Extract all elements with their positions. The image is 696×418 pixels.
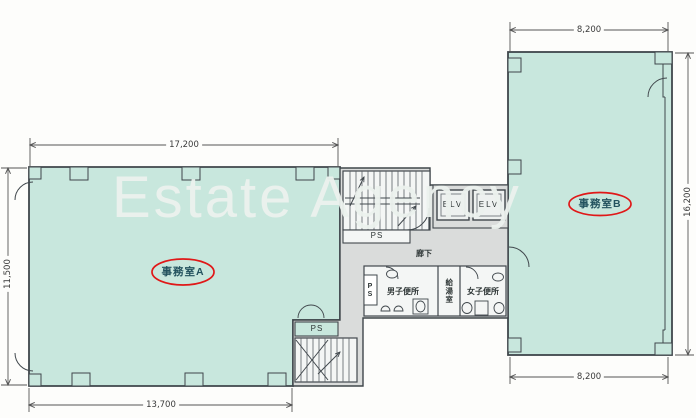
office-b-room [508, 52, 672, 355]
floorplan-drawing [0, 0, 696, 418]
lower-stairwell [295, 338, 357, 382]
office-a-room [15, 167, 340, 386]
elevator-1-box [437, 190, 469, 220]
toilet-block [364, 266, 506, 316]
upper-stairwell [343, 171, 430, 230]
elevator-2-box [473, 190, 505, 220]
elevator-lobby [433, 185, 508, 228]
pipe-shaft-lower-room [295, 322, 338, 336]
floorplan-image: 事務室A 事務室B 廊下 男子便所 女子便所 給湯室 PS PS PS ELV … [0, 0, 696, 418]
pipe-shaft-toilet-room [364, 275, 377, 305]
pipe-shaft-stair-room [343, 230, 410, 243]
office-b-outline [508, 52, 672, 355]
